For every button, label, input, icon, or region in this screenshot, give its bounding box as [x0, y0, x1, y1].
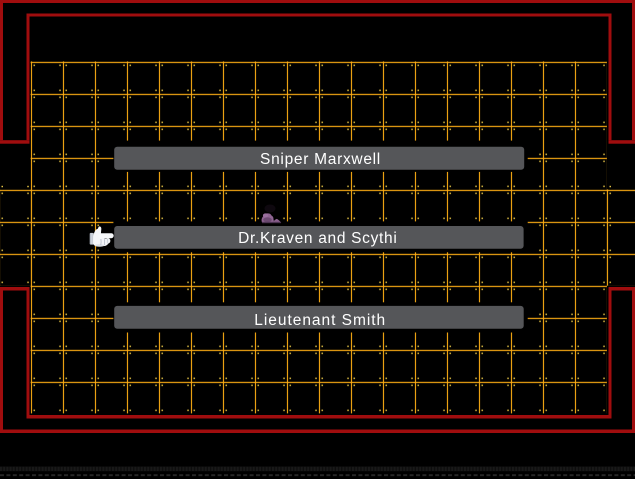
svg-text:Sniper Marxwell: Sniper Marxwell [260, 151, 381, 168]
svg-text:Dr.Kraven and Scythi: Dr.Kraven and Scythi [238, 230, 397, 247]
svg-text:Lieutenant Smith: Lieutenant Smith [254, 312, 386, 329]
